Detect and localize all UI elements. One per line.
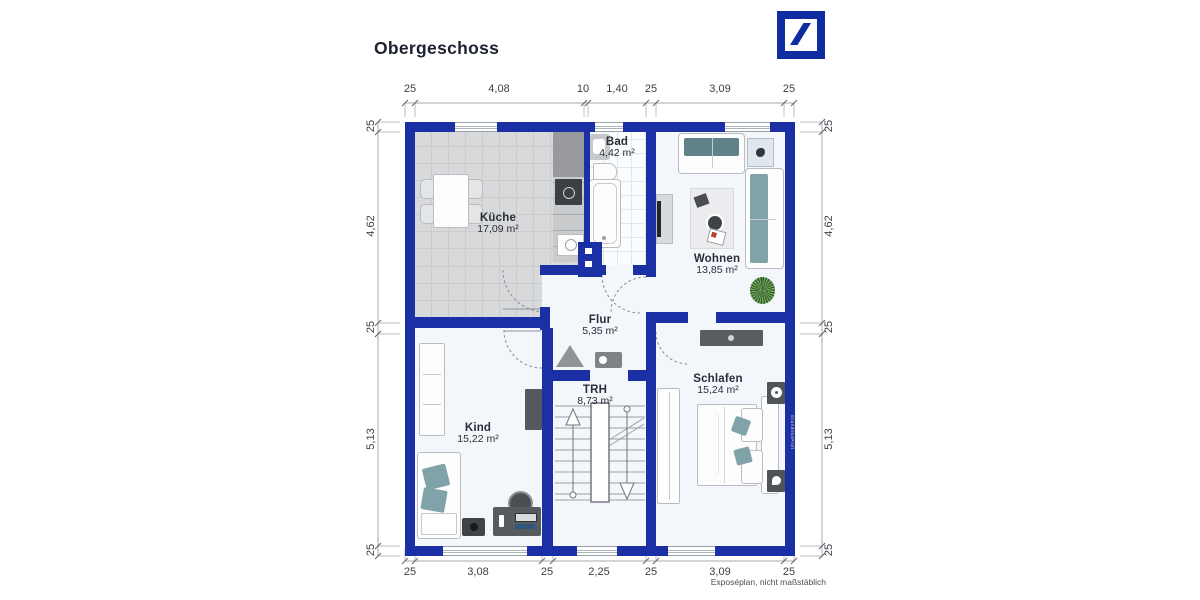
- wall-mid-right-a: [646, 312, 688, 323]
- stair-spine: [591, 403, 609, 502]
- pier-notch: [585, 248, 592, 254]
- window-trh: [577, 546, 617, 556]
- window-schlafen: [668, 546, 715, 556]
- wall-trh-top-b: [628, 370, 646, 381]
- wall-mid-left: [415, 317, 540, 328]
- pier-notch: [585, 261, 592, 267]
- room-label-trh: TRH 8,73 m²: [545, 384, 645, 407]
- wall-mid-right-b: [716, 312, 785, 323]
- flur-sideboard: [595, 352, 622, 368]
- dim-right-4: 25: [823, 530, 835, 570]
- room-area: 8,73 m²: [545, 396, 645, 407]
- dim-left-2: 25: [365, 307, 377, 347]
- window-kind: [443, 546, 527, 556]
- dim-left-0: 25: [365, 106, 377, 146]
- watermark-text: GrundrissProfi: [785, 415, 795, 515]
- dim-bottom-4: 25: [631, 566, 671, 578]
- kueche-door-arc: [503, 270, 545, 312]
- dim-right-3: 5,13: [823, 419, 835, 459]
- wall-outer-left: [405, 122, 415, 556]
- wohnen-door-arc: [611, 277, 646, 312]
- window-kueche: [455, 122, 497, 132]
- room-label-schlafen: Schlafen 15,24 m²: [668, 373, 768, 396]
- dim-bottom-0: 25: [390, 566, 430, 578]
- wall-kueche-bottom: [540, 265, 606, 275]
- room-label-kind: Kind 15,22 m²: [428, 422, 528, 445]
- wall-bad-bottom: [633, 265, 656, 275]
- dim-left-3: 5,13: [365, 419, 377, 459]
- floorplan-page: Obergeschoss: [0, 0, 1200, 600]
- floorplan: GrundrissProfi: [405, 122, 795, 556]
- dim-bottom-1: 3,08: [458, 566, 498, 578]
- dim-top-1: 4,08: [479, 83, 519, 95]
- wall-kind-trh: [542, 328, 553, 546]
- schlafen-door-arc: [656, 332, 688, 364]
- room-area: 15,22 m²: [428, 434, 528, 445]
- dim-top-5: 3,09: [700, 83, 740, 95]
- dim-top-4: 25: [631, 83, 671, 95]
- room-area: 17,09 m²: [448, 224, 548, 235]
- room-label-bad: Bad 4,42 m²: [588, 136, 646, 159]
- room-area: 5,35 m²: [550, 326, 650, 337]
- wall-bad-wohnen: [646, 132, 656, 277]
- dim-left-4: 25: [365, 530, 377, 570]
- bad-door-arc: [602, 275, 640, 313]
- wall-trh-schlafen: [646, 323, 656, 546]
- dim-bottom-3: 2,25: [579, 566, 619, 578]
- wall-trh-top-a: [553, 370, 590, 381]
- dim-right-0: 25: [823, 106, 835, 146]
- dim-right-2: 25: [823, 307, 835, 347]
- room-label-flur: Flur 5,35 m²: [550, 314, 650, 337]
- room-label-wohnen: Wohnen 13,85 m²: [667, 253, 767, 276]
- room-area: 13,85 m²: [667, 265, 767, 276]
- kind-door-arc: [504, 330, 542, 368]
- window-wohnen: [725, 122, 770, 132]
- dim-bottom-6: 25: [769, 566, 809, 578]
- sideboard-knob-icon: [599, 356, 607, 364]
- dim-top-0: 25: [390, 83, 430, 95]
- dim-bottom-2: 25: [527, 566, 567, 578]
- dim-top-6: 25: [769, 83, 809, 95]
- dim-right-1: 4,62: [823, 206, 835, 246]
- dim-bottom-5: 3,09: [700, 566, 740, 578]
- room-area: 4,42 m²: [588, 148, 646, 159]
- entrance-arrow-icon: [556, 345, 584, 367]
- room-area: 15,24 m²: [668, 385, 768, 396]
- window-bad: [595, 122, 623, 132]
- room-label-kueche: Küche 17,09 m²: [448, 212, 548, 235]
- wall-kueche-door-pier: [540, 307, 550, 330]
- dim-left-1: 4,62: [365, 206, 377, 246]
